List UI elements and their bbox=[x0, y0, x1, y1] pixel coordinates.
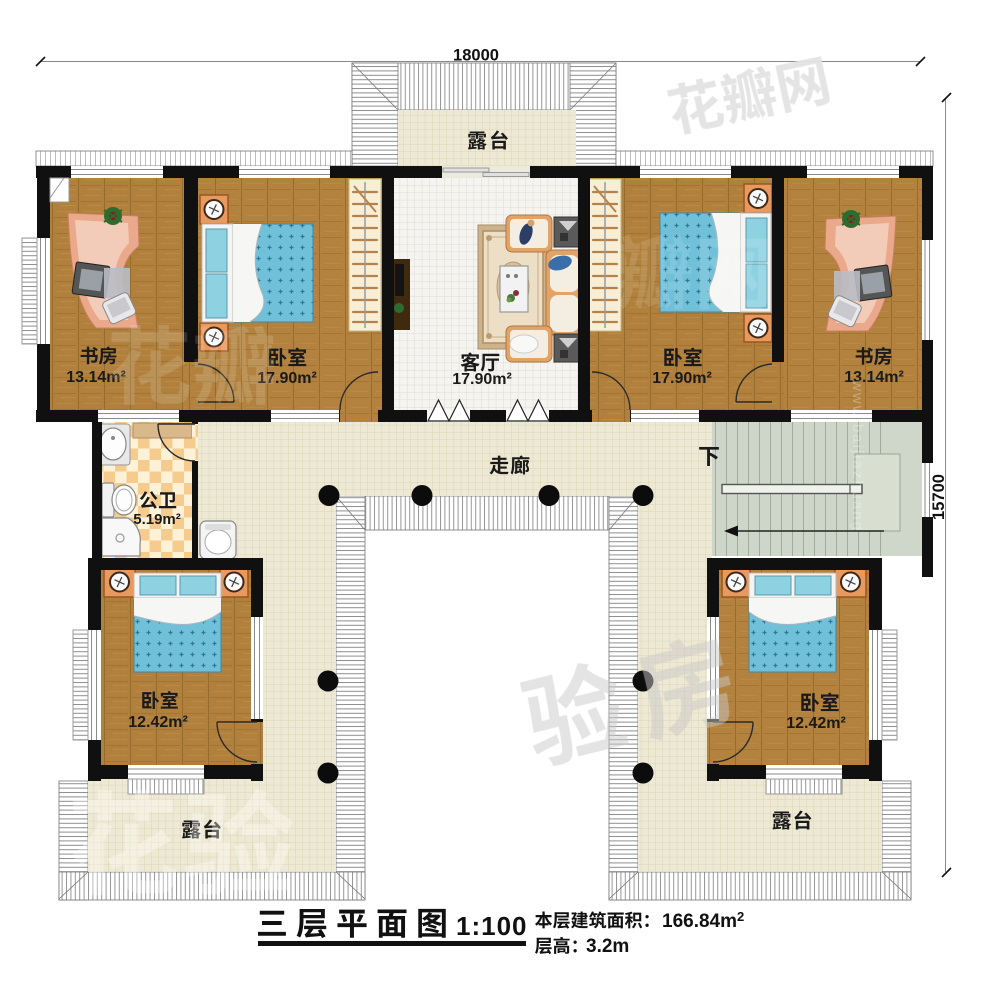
svg-text:17.90m²: 17.90m² bbox=[257, 370, 317, 387]
svg-text:18000: 18000 bbox=[453, 47, 499, 65]
svg-text:166.84m2: 166.84m2 bbox=[662, 909, 744, 932]
svg-text:3.2m: 3.2m bbox=[586, 936, 629, 957]
svg-text:12.42m²: 12.42m² bbox=[128, 714, 188, 731]
svg-text:12.42m²: 12.42m² bbox=[786, 715, 846, 732]
svg-text:13.14m²: 13.14m² bbox=[66, 369, 126, 386]
svg-text:17.90m²: 17.90m² bbox=[452, 371, 512, 388]
svg-text:17.90m²: 17.90m² bbox=[652, 370, 712, 387]
svg-text:15700: 15700 bbox=[930, 474, 948, 520]
svg-text:1:100: 1:100 bbox=[456, 911, 528, 941]
svg-text:13.14m²: 13.14m² bbox=[844, 369, 904, 386]
svg-text:5.19m²: 5.19m² bbox=[133, 511, 181, 528]
